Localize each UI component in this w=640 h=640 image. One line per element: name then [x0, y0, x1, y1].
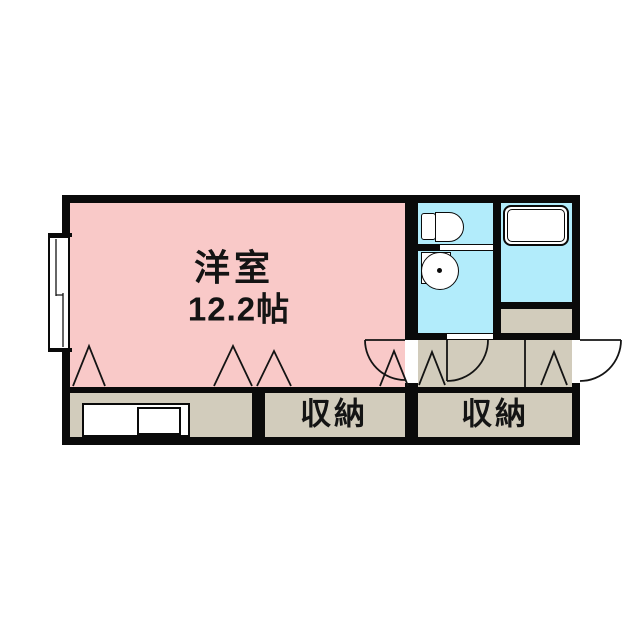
toilet-tank: [421, 213, 436, 240]
room-entry-corridor: [418, 340, 572, 387]
window-cap-bottom: [48, 348, 72, 352]
storage-right-label: 収納: [461, 399, 529, 430]
toilet-icon: [435, 212, 464, 242]
wall-closet-strip-top: [62, 387, 580, 393]
washbasin-drain: [437, 268, 442, 273]
doorway-entrance: [572, 340, 580, 383]
bathtub-icon: [503, 205, 569, 246]
doorway-washroom: [447, 333, 493, 340]
room-main-size-label: 12.2帖: [188, 293, 290, 326]
bathtub-inner-rim: [507, 209, 565, 242]
wall-kitchen-storage-divider: [252, 387, 265, 445]
wall-toilet-washroom: [418, 244, 440, 251]
room-main-name-label: 洋室: [194, 250, 274, 286]
kitchen-sink: [137, 407, 181, 435]
sliding-window-icon: [48, 236, 70, 350]
wall-left-upper: [62, 195, 70, 237]
room-entry-step: [501, 309, 572, 333]
wall-main-wet-divider: [405, 195, 418, 340]
wall-bathroom-bottom: [501, 302, 572, 309]
wall-bottom: [62, 437, 580, 445]
wall-top: [62, 195, 580, 203]
storage-center-label: 収納: [300, 399, 368, 430]
doorway-main-to-corridor: [405, 340, 418, 383]
wall-washroom-bath-divider: [493, 195, 501, 340]
window-cap-top: [48, 233, 72, 237]
door-arc-entrance: [580, 340, 621, 381]
wall-entry-step-bottom: [493, 333, 572, 340]
floor-plan: 洋室 12.2帖 収納 収納: [0, 0, 640, 640]
wall-washroom-corridor: [418, 333, 447, 340]
wall-right-upper: [572, 195, 580, 340]
wall-left-lower: [62, 350, 70, 445]
doorway-toilet: [440, 244, 493, 251]
